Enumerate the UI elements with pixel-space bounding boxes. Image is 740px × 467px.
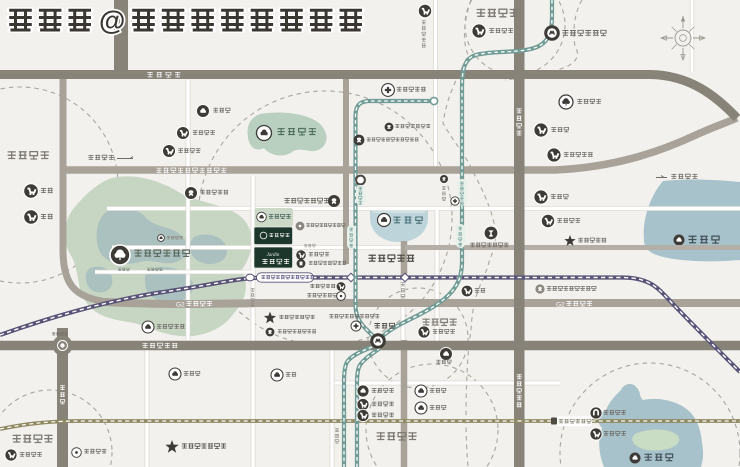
svg-text:Jardin: Jardin — [267, 253, 280, 258]
svg-text:G2: G2 — [176, 302, 185, 309]
svg-text:@: @ — [99, 6, 125, 36]
svg-text:G2: G2 — [556, 302, 565, 309]
